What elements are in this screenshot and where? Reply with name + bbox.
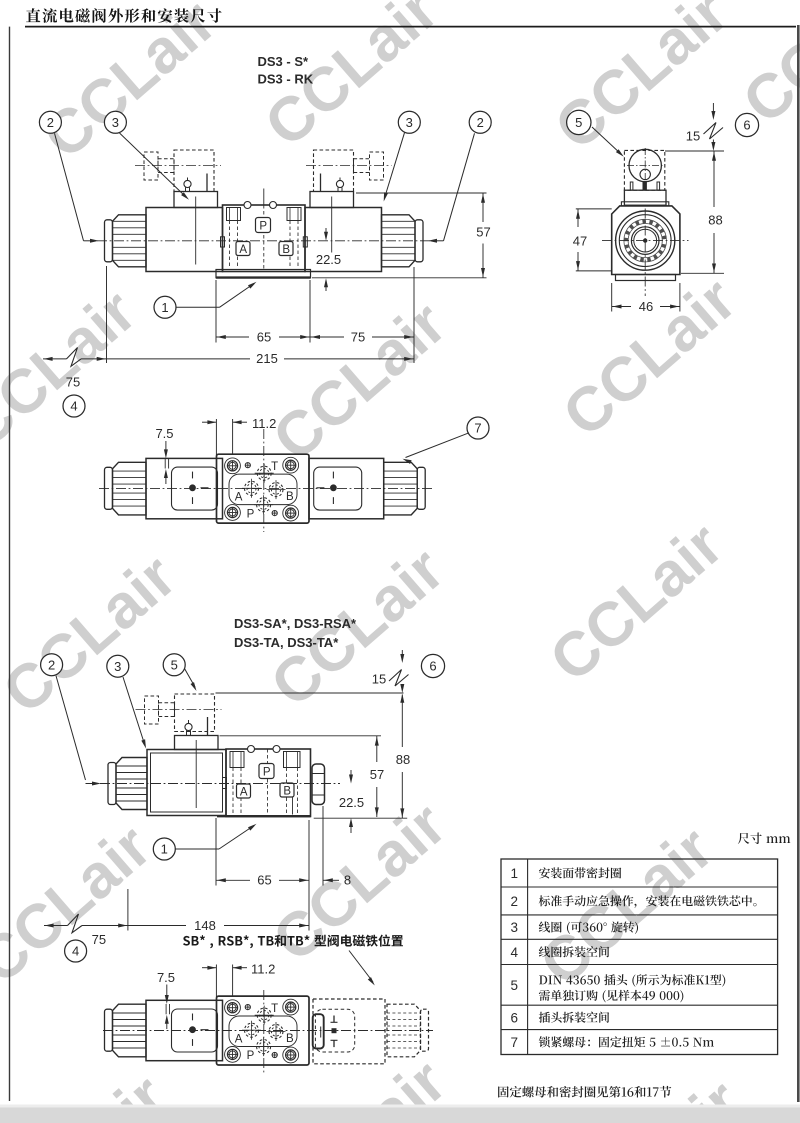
svg-text:DS3-TA, DS3-TA*: DS3-TA, DS3-TA*	[234, 635, 339, 650]
svg-text:T: T	[271, 1003, 278, 1015]
svg-text:A: A	[235, 492, 243, 504]
svg-text:6: 6	[429, 659, 436, 674]
svg-text:DS3 - RK: DS3 - RK	[258, 72, 314, 87]
svg-text:4: 4	[70, 399, 77, 414]
svg-text:CCLair: CCLair	[550, 265, 749, 450]
svg-text:B: B	[283, 786, 291, 798]
svg-text:CCLair: CCLair	[260, 289, 459, 474]
svg-text:4: 4	[72, 944, 79, 959]
svg-text:2: 2	[48, 657, 55, 672]
svg-text:3: 3	[511, 920, 519, 935]
svg-text:75: 75	[351, 329, 365, 344]
svg-text:7: 7	[474, 421, 481, 436]
svg-text:CCLair: CCLair	[527, 814, 726, 999]
svg-text:DS3 - S*: DS3 - S*	[258, 54, 310, 69]
svg-text:88: 88	[708, 213, 722, 228]
svg-text:8: 8	[344, 873, 351, 888]
svg-text:57: 57	[476, 224, 490, 239]
svg-text:22.5: 22.5	[316, 252, 341, 267]
svg-text:CCLair: CCLair	[537, 510, 736, 695]
svg-text:6: 6	[743, 118, 750, 133]
svg-text:T: T	[271, 461, 278, 473]
svg-text:1: 1	[511, 866, 519, 881]
svg-text:P: P	[247, 508, 255, 520]
svg-text:46: 46	[639, 299, 653, 314]
svg-text:5: 5	[511, 978, 519, 993]
svg-text:11.2: 11.2	[251, 961, 275, 976]
svg-text:P: P	[263, 766, 271, 778]
svg-text:15: 15	[372, 672, 386, 687]
svg-text:88: 88	[396, 752, 410, 767]
svg-text:75: 75	[92, 932, 106, 947]
svg-text:2: 2	[511, 894, 519, 909]
svg-text:2: 2	[477, 115, 484, 130]
svg-text:3: 3	[114, 659, 121, 674]
svg-text:7.5: 7.5	[157, 970, 175, 985]
svg-text:P: P	[259, 220, 267, 232]
svg-text:5: 5	[171, 658, 178, 673]
svg-text:75: 75	[66, 374, 80, 389]
svg-text:11.2: 11.2	[252, 416, 276, 431]
svg-text:P: P	[247, 1050, 255, 1062]
svg-text:CCLair: CCLair	[0, 812, 164, 997]
svg-text:1: 1	[161, 842, 168, 857]
svg-text:65: 65	[257, 329, 271, 344]
svg-text:CCLair: CCLair	[542, 0, 741, 163]
svg-text:4: 4	[511, 945, 519, 960]
svg-text:A: A	[240, 787, 248, 799]
svg-text:47: 47	[573, 233, 587, 248]
svg-text:B: B	[286, 1033, 294, 1045]
svg-text:3: 3	[112, 115, 119, 130]
svg-text:7: 7	[511, 1035, 519, 1050]
svg-text:7.5: 7.5	[155, 426, 173, 441]
svg-text:22.5: 22.5	[339, 795, 364, 810]
svg-text:65: 65	[257, 873, 271, 888]
svg-text:215: 215	[256, 351, 278, 366]
svg-text:5: 5	[575, 115, 582, 130]
svg-text:3: 3	[406, 115, 413, 130]
svg-text:DS3-SA*, DS3-RSA*: DS3-SA*, DS3-RSA*	[234, 616, 357, 631]
svg-text:A: A	[239, 244, 247, 256]
svg-text:6: 6	[511, 1010, 519, 1025]
svg-text:2: 2	[47, 115, 54, 130]
svg-text:CCLair: CCLair	[0, 277, 149, 462]
svg-text:15: 15	[686, 128, 700, 143]
svg-text:B: B	[286, 491, 294, 503]
svg-text:148: 148	[194, 918, 216, 933]
svg-text:1: 1	[161, 300, 168, 315]
svg-text:57: 57	[370, 767, 384, 782]
svg-text:B: B	[282, 244, 290, 256]
svg-text:A: A	[235, 1034, 243, 1046]
svg-text:CCLair: CCLair	[0, 542, 189, 727]
svg-text:CCLair: CCLair	[260, 790, 459, 975]
